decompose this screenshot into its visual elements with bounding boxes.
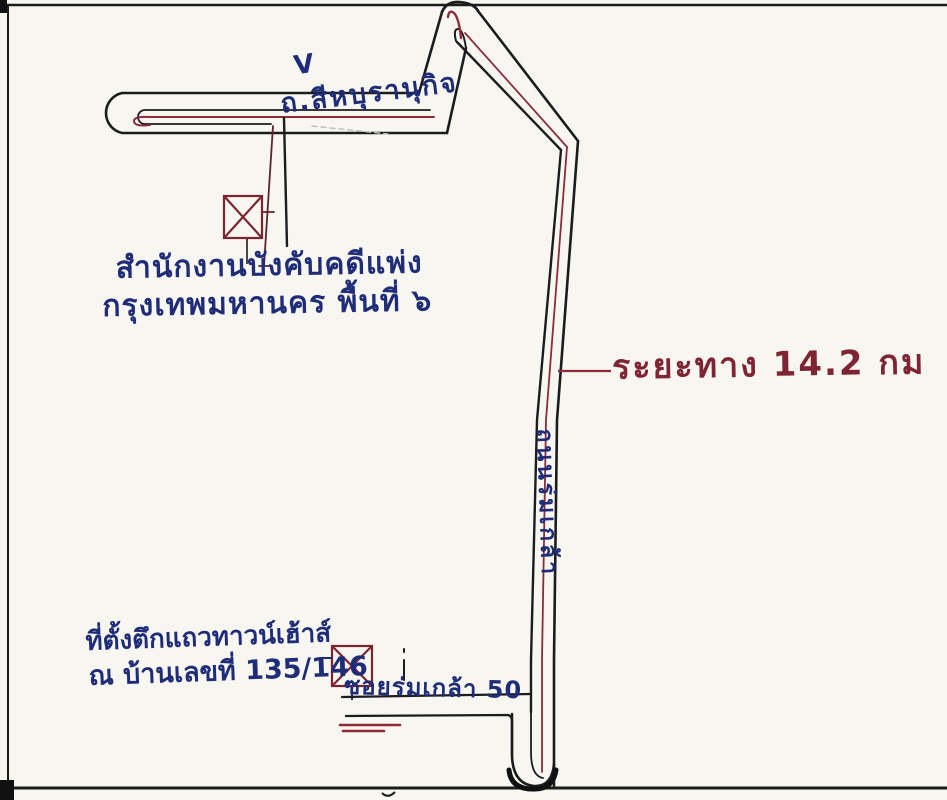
vertical-road-label: ถนนร่มเกล้า — [532, 428, 561, 577]
office-label: สำนักงานบังคับคดีแพ่ง กรุงเทพมหานคร พื้น… — [115, 247, 432, 322]
top-road — [106, 2, 578, 150]
soi-road-label: ซอยร่มเกล้า 50 — [344, 674, 523, 704]
soi-label-underline — [340, 725, 400, 731]
office-access-stub — [259, 118, 287, 266]
scanned-map-page: สำนักงานบังคับคดีแพ่ง กรุงเทพมหานคร พื้น… — [0, 0, 947, 800]
caret-mark: V — [292, 51, 316, 81]
office-label-line2: กรุงเทพมหานคร พื้นที่ ๖ — [102, 285, 432, 322]
office-label-line1: สำนักงานบังคับคดีแพ่ง — [115, 245, 423, 285]
distance-label: ระยะทาง 14.2 กม — [612, 345, 926, 386]
destination-label: ที่ตั้งตึกแถวทาวน์เฮ้าส์ ณ บ้านเลขที่ 13… — [85, 619, 368, 691]
